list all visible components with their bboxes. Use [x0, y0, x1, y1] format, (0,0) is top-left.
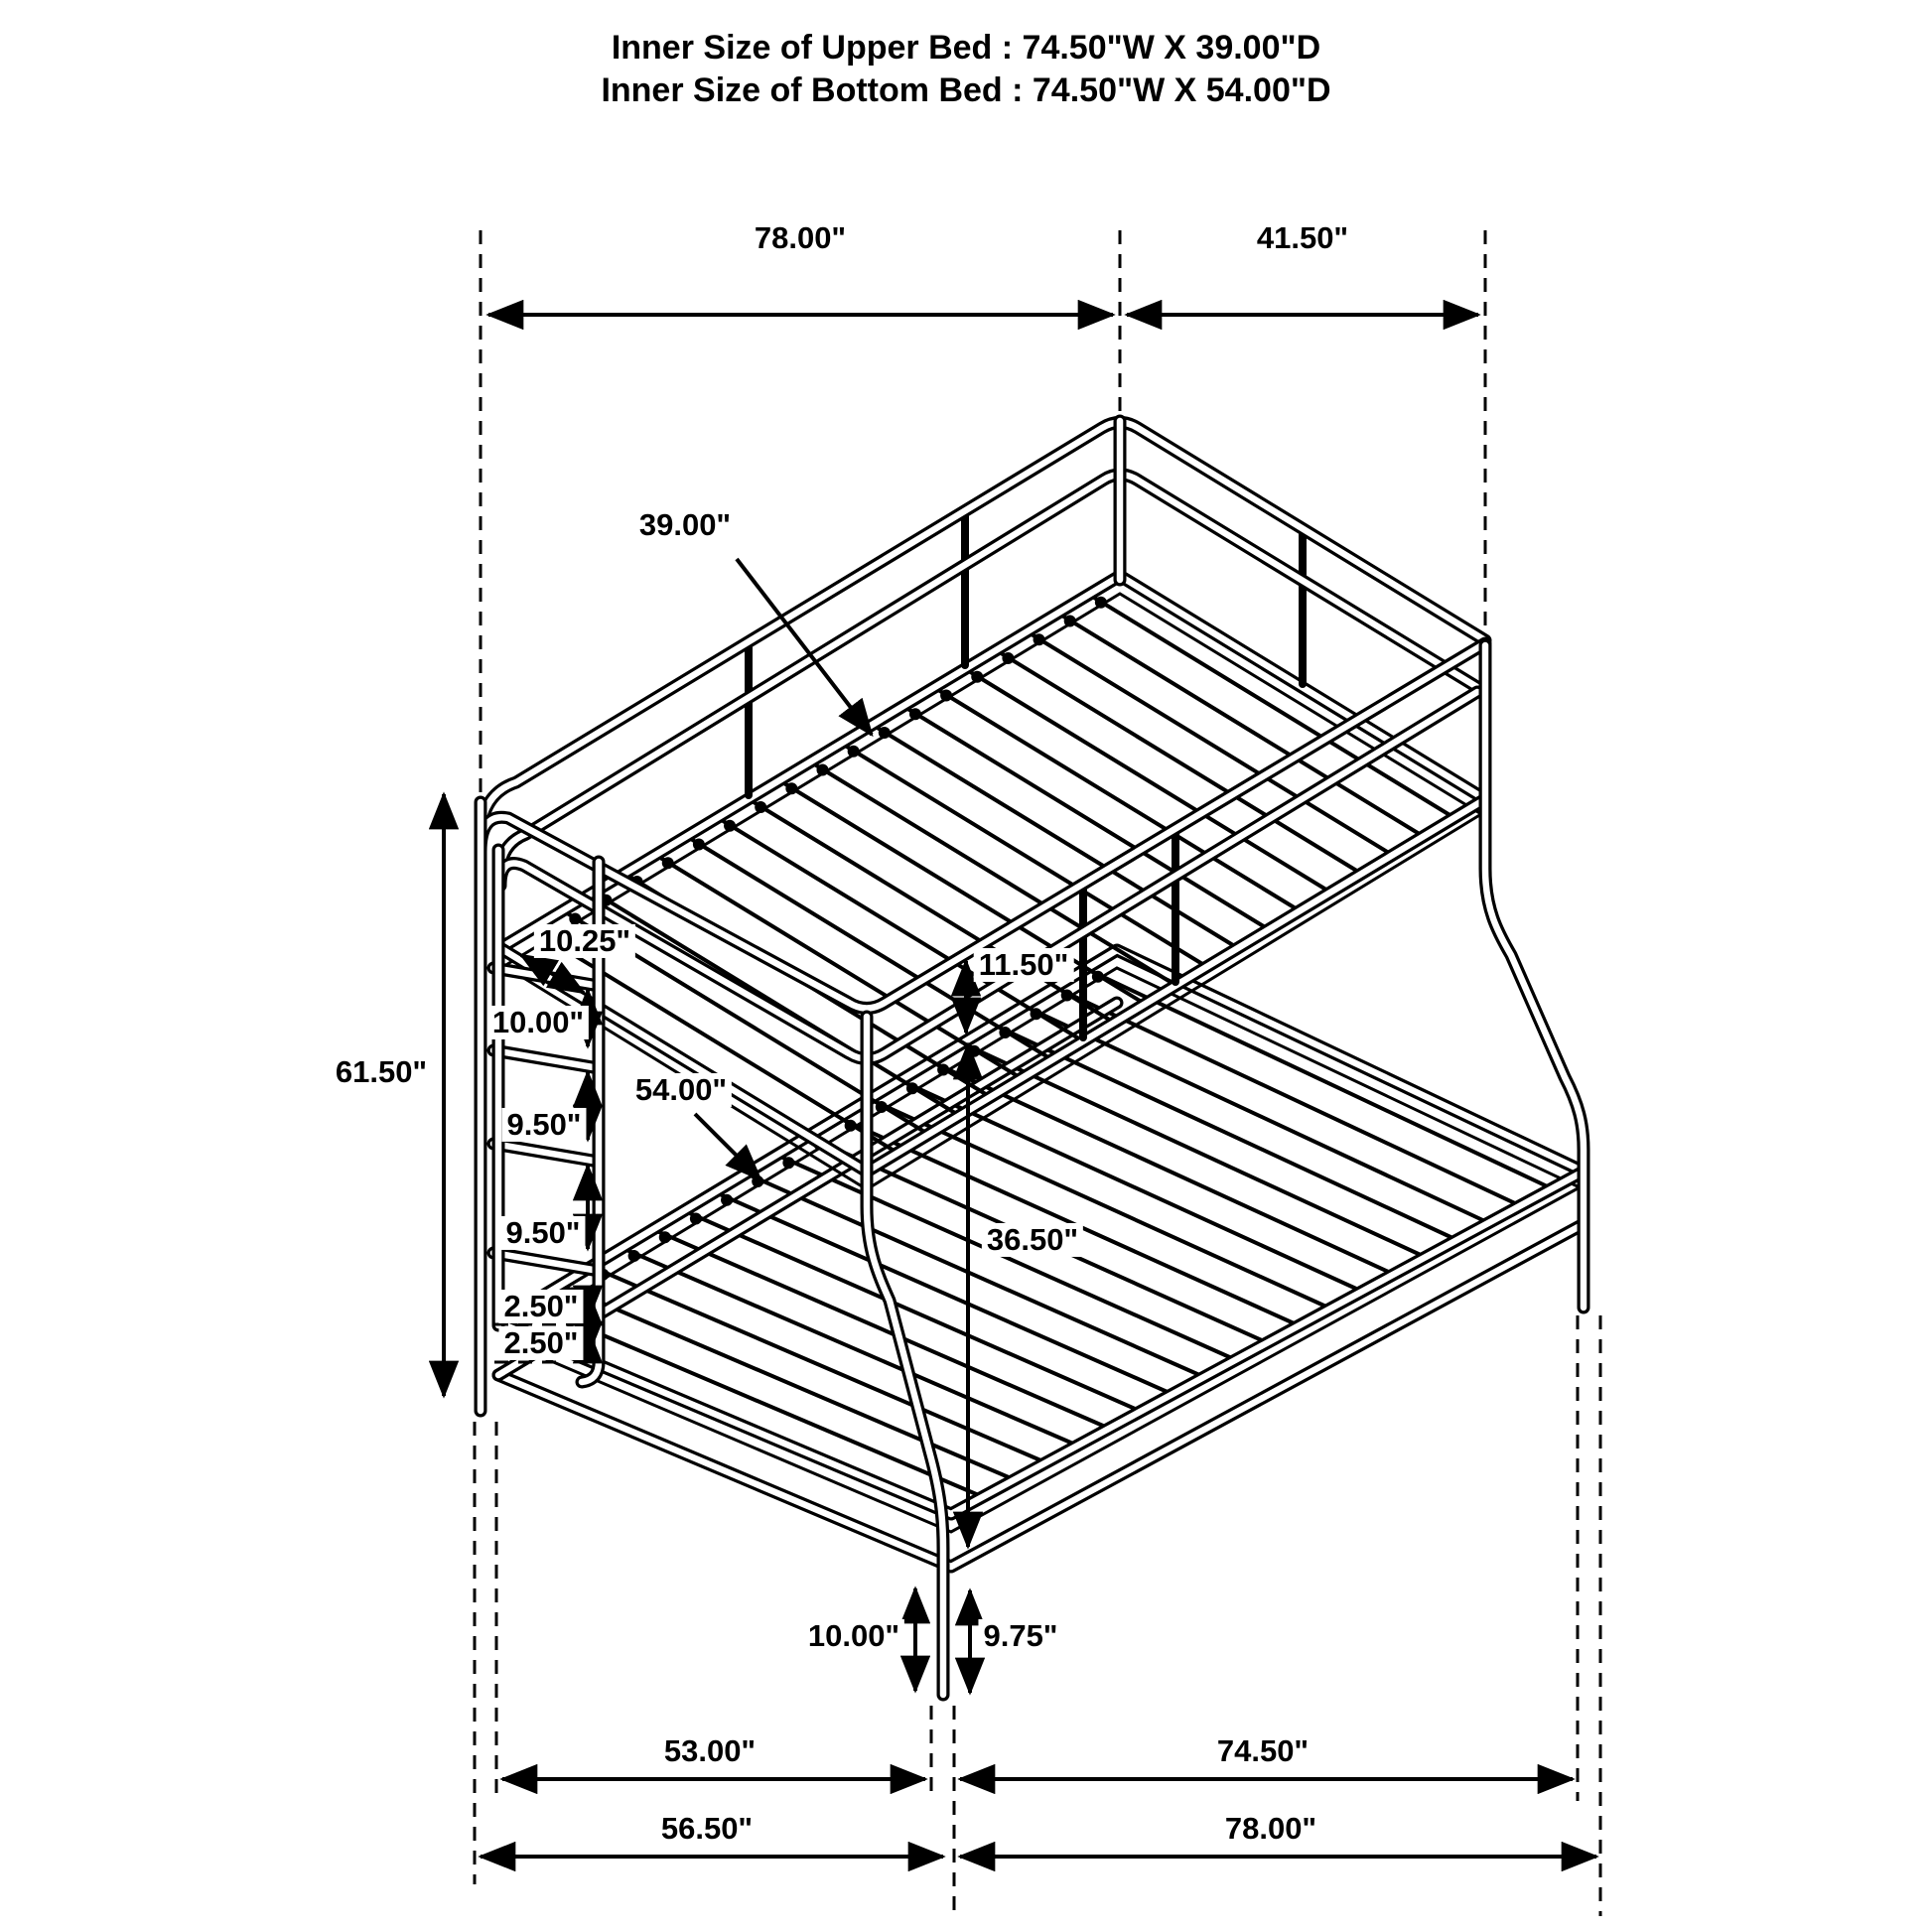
dim-overall-height: 61.50" [331, 1055, 432, 1089]
dim-ladder-spacing-6: 2.50" [498, 1326, 583, 1360]
dim-ladder-spacing-1: 10.25" [534, 924, 635, 958]
dim-ladder-spacing-3: 9.50" [501, 1108, 586, 1142]
dim-overall-width: 78.00" [750, 221, 851, 255]
dim-upper-bed-depth: 39.00" [634, 508, 736, 542]
dim-bottom-span-right: 74.50" [1212, 1734, 1313, 1768]
dim-bottom-total-left: 56.50" [656, 1812, 758, 1846]
bunk-bed-dimension-diagram: Inner Size of Upper Bed : 74.50"W X 39.0… [0, 0, 1932, 1932]
title-upper-bed-size: Inner Size of Upper Bed : 74.50"W X 39.0… [0, 28, 1932, 69]
dim-floor-clearance-front: 10.00" [803, 1619, 904, 1653]
dim-ladder-spacing-2: 10.00" [487, 1006, 589, 1039]
dim-bottom-span-left: 53.00" [659, 1734, 760, 1768]
dim-bottom-total-right: 78.00" [1220, 1812, 1321, 1846]
dim-ladder-spacing-5: 2.50" [498, 1290, 583, 1323]
dim-overall-depth: 41.50" [1252, 221, 1353, 255]
bed-line-drawing [0, 0, 1932, 1932]
dim-floor-clearance-side: 9.75" [978, 1619, 1062, 1653]
dim-lower-bed-depth: 54.00" [630, 1073, 732, 1107]
dim-bunk-gap: 11.50" [974, 948, 1074, 982]
title-bottom-bed-size: Inner Size of Bottom Bed : 74.50"W X 54.… [0, 70, 1932, 111]
dim-lower-rail-height: 36.50" [982, 1223, 1083, 1257]
dim-ladder-spacing-4: 9.50" [500, 1216, 585, 1250]
